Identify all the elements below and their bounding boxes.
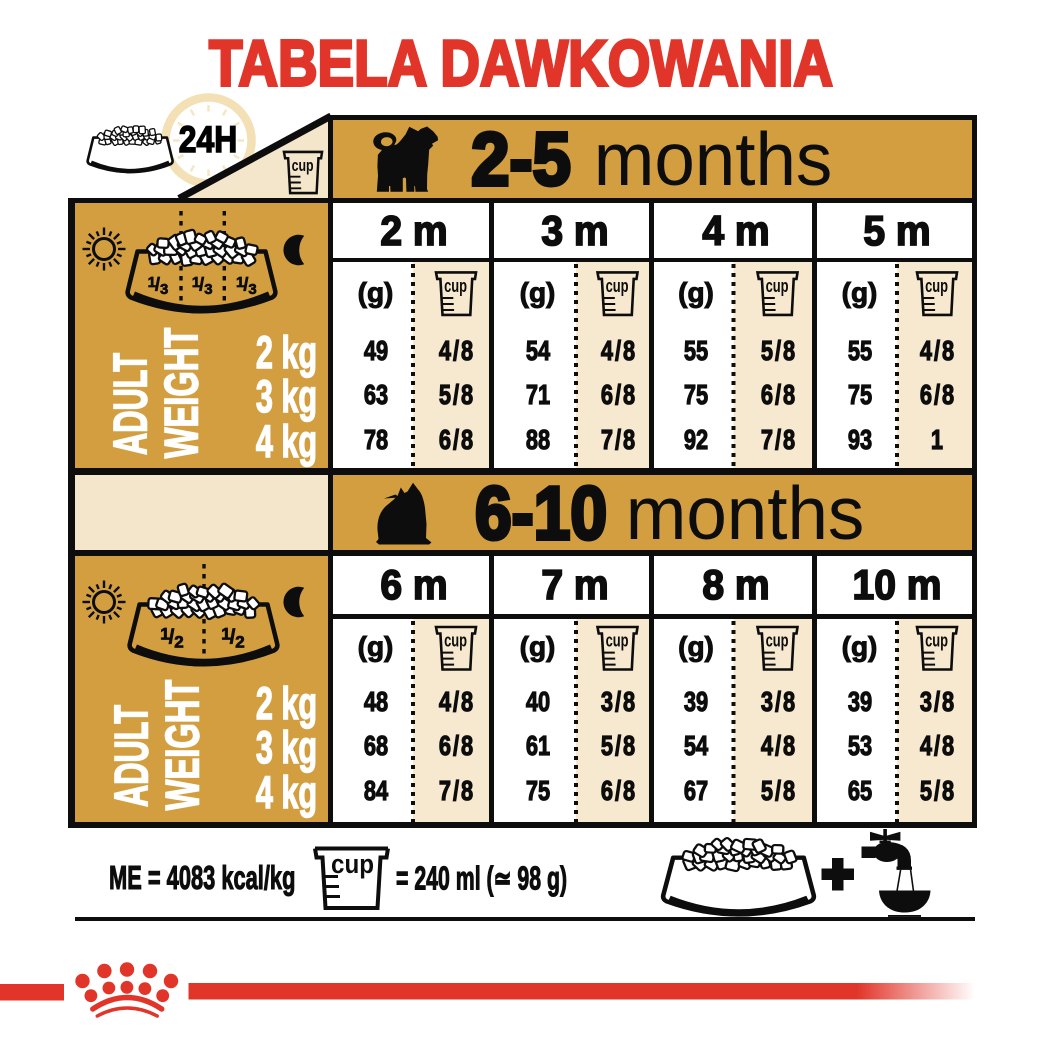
svg-text:cup: cup bbox=[766, 631, 789, 651]
svg-text:cup: cup bbox=[292, 156, 314, 175]
svg-text:cup: cup bbox=[444, 631, 467, 651]
svg-text:cup: cup bbox=[766, 276, 789, 296]
svg-text:cup: cup bbox=[925, 631, 948, 651]
svg-text:cup: cup bbox=[444, 276, 467, 296]
svg-text:cup: cup bbox=[331, 849, 374, 879]
svg-text:cup: cup bbox=[925, 276, 948, 296]
svg-text:cup: cup bbox=[606, 631, 629, 651]
svg-text:cup: cup bbox=[606, 276, 629, 296]
